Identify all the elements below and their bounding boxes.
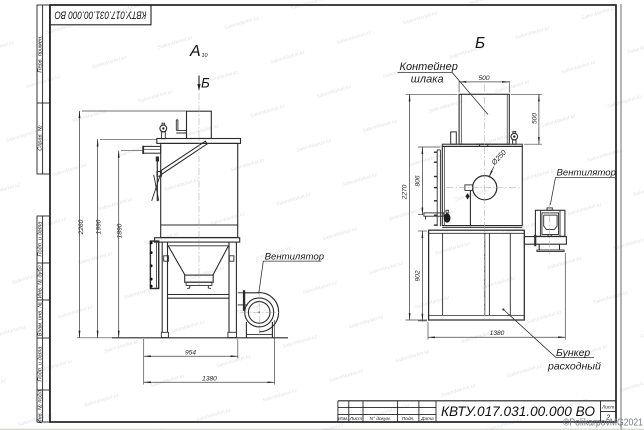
svg-text:Контейнер: Контейнер [400, 61, 458, 73]
svg-text:Справ. №: Справ. № [38, 125, 44, 150]
svg-text:Б: Б [201, 75, 210, 90]
svg-text:Подп.: Подп. [402, 416, 415, 422]
svg-text:954: 954 [185, 349, 196, 356]
svg-text:1890: 1890 [116, 223, 123, 238]
svg-text:©PolikarpovMG2021: ©PolikarpovMG2021 [563, 418, 643, 429]
svg-text:Инв. № дубл.: Инв. № дубл. [38, 264, 44, 298]
svg-text:1990: 1990 [95, 219, 102, 234]
svg-text:Лист: Лист [349, 416, 362, 422]
svg-text:Инв. № подл.: Инв. № подл. [38, 389, 44, 424]
svg-text:Подп. и дата: Подп. и дата [38, 221, 44, 256]
svg-text:шлака: шлака [411, 74, 444, 86]
svg-text:902: 902 [415, 270, 422, 281]
svg-text:Вентилятор: Вентилятор [557, 167, 617, 178]
svg-text:2270: 2270 [402, 184, 409, 200]
svg-text:Перв. примен.: Перв. примен. [38, 35, 44, 72]
svg-text:А: А [189, 43, 201, 60]
svg-text:10: 10 [202, 53, 209, 59]
svg-text:Б: Б [475, 35, 485, 52]
svg-text:500: 500 [531, 113, 538, 124]
svg-text:КВТУ.017.031.00.000 ВО: КВТУ.017.031.00.000 ВО [54, 9, 146, 21]
svg-text:Лист: Лист [601, 404, 614, 410]
svg-text:500: 500 [478, 75, 489, 82]
svg-text:Дата: Дата [420, 416, 434, 422]
svg-text:1380: 1380 [490, 330, 505, 337]
svg-text:Подп. и дата: Подп. и дата [38, 346, 44, 381]
svg-text:2260: 2260 [78, 219, 85, 235]
svg-text:расходный: расходный [547, 361, 601, 373]
svg-text:Изм.: Изм. [338, 416, 348, 422]
svg-text:806: 806 [415, 175, 422, 186]
svg-text:1380: 1380 [202, 375, 217, 382]
svg-text:N° докум.: N° докум. [370, 416, 391, 422]
svg-text:Взам. инв. №: Взам. инв. № [38, 302, 44, 337]
svg-text:Бункер: Бункер [556, 347, 590, 359]
